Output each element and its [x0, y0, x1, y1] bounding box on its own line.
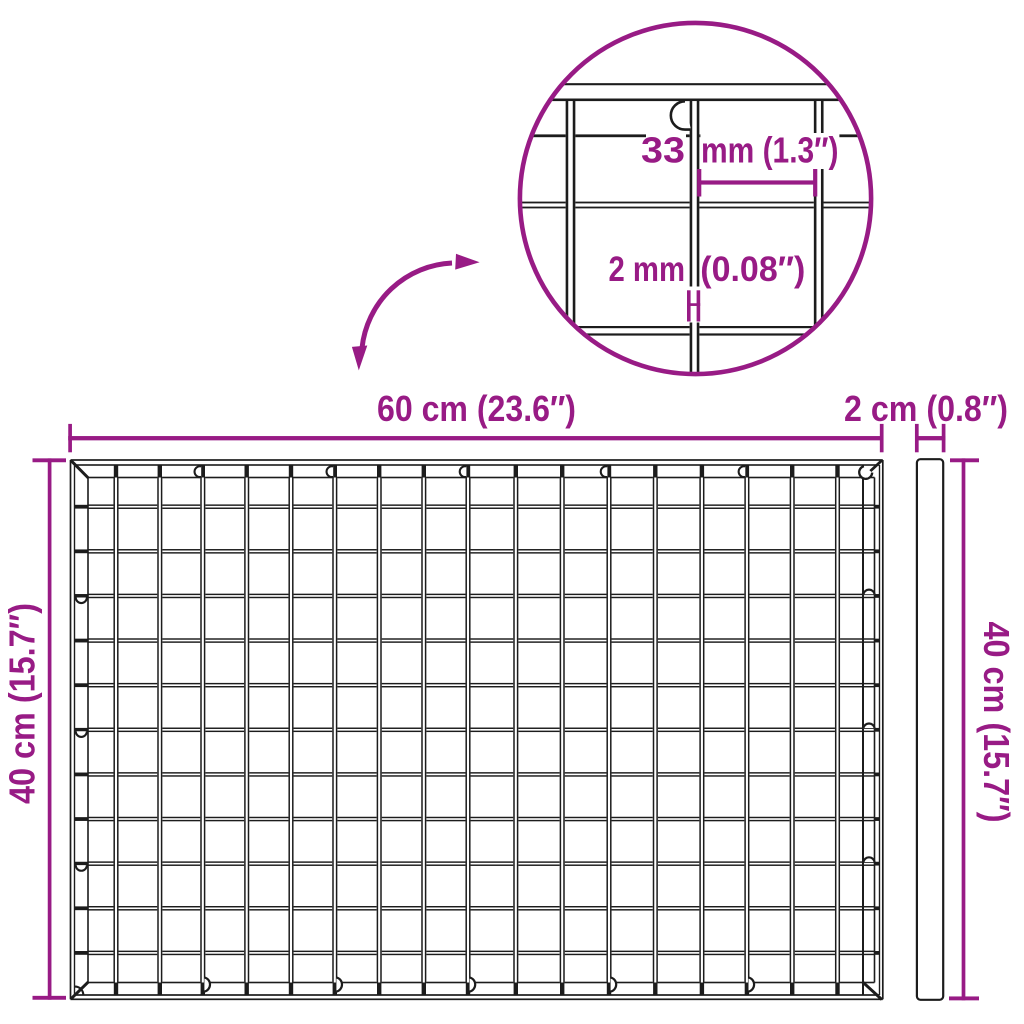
svg-text:33: 33: [641, 130, 685, 171]
svg-text:40 cm (15.7″): 40 cm (15.7″): [976, 622, 1017, 823]
svg-text:2 cm (0.8″): 2 cm (0.8″): [844, 388, 1008, 429]
svg-text:40 cm (15.7″): 40 cm (15.7″): [2, 603, 43, 804]
svg-text:60 cm (23.6″): 60 cm (23.6″): [377, 388, 576, 429]
svg-text:2 mm: 2 mm: [609, 250, 686, 289]
svg-text:mm (1.3″): mm (1.3″): [701, 130, 839, 171]
svg-text:(0.08″): (0.08″): [700, 250, 805, 289]
